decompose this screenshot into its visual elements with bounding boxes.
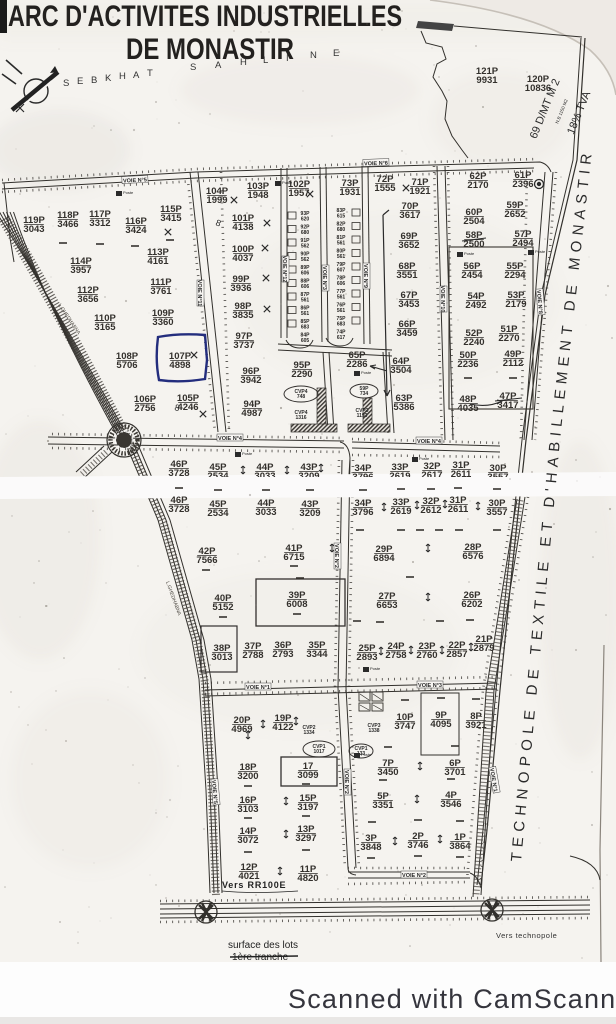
svg-text:1316: 1316	[295, 415, 306, 421]
svg-text:748: 748	[297, 394, 306, 400]
svg-text:3099: 3099	[297, 770, 318, 781]
svg-text:I: I	[286, 53, 289, 64]
svg-text:VOIE N°2: VOIE N°2	[343, 770, 349, 794]
svg-text:Poste: Poste	[361, 752, 372, 757]
svg-text:683: 683	[301, 325, 310, 331]
svg-text:606: 606	[301, 271, 310, 277]
svg-text:3453: 3453	[398, 299, 419, 310]
svg-text:6576: 6576	[462, 551, 483, 562]
svg-text:620: 620	[301, 217, 310, 223]
svg-text:5386: 5386	[393, 402, 414, 413]
svg-text:1957: 1957	[288, 188, 309, 199]
svg-text:1948: 1948	[247, 190, 268, 201]
svg-text:3942: 3942	[240, 375, 261, 386]
svg-text:4820: 4820	[297, 873, 318, 884]
svg-text:VOIE N°3: VOIE N°3	[418, 683, 442, 689]
svg-text:VOIE N°10: VOIE N°10	[439, 286, 445, 313]
svg-text:3466: 3466	[57, 219, 78, 230]
svg-text:Poste: Poste	[419, 456, 430, 461]
svg-text:680: 680	[337, 227, 346, 233]
svg-text:561: 561	[301, 311, 310, 317]
svg-text:3921: 3921	[465, 720, 487, 731]
svg-text:VOIE N°2: VOIE N°2	[333, 544, 339, 568]
svg-text:L: L	[263, 55, 268, 66]
svg-text:Vers technopole: Vers technopole	[496, 931, 557, 940]
svg-text:3551: 3551	[396, 270, 418, 281]
svg-text:2893: 2893	[356, 652, 377, 663]
svg-text:1193: 1193	[357, 413, 368, 419]
svg-text:2793: 2793	[272, 649, 293, 660]
svg-text:5706: 5706	[116, 360, 137, 371]
svg-text:3209: 3209	[299, 508, 320, 519]
svg-text:3864: 3864	[449, 841, 471, 852]
svg-text:2758: 2758	[385, 650, 406, 661]
svg-text:3013: 3013	[211, 652, 232, 663]
svg-text:3796: 3796	[352, 507, 373, 518]
svg-text:Poste: Poste	[242, 451, 253, 456]
svg-text:2236: 2236	[457, 359, 478, 370]
svg-text:561: 561	[301, 298, 310, 304]
svg-text:VOIE N°5: VOIE N°5	[123, 177, 147, 184]
svg-text:734: 734	[360, 391, 369, 397]
svg-text:4161: 4161	[147, 256, 169, 267]
svg-text:2504: 2504	[463, 216, 485, 227]
svg-text:607: 607	[337, 268, 346, 274]
svg-text:3351: 3351	[372, 800, 394, 811]
svg-text:4987: 4987	[241, 408, 262, 419]
svg-text:1338: 1338	[368, 728, 379, 734]
svg-text:4138: 4138	[232, 222, 253, 233]
svg-text:2290: 2290	[291, 369, 312, 380]
svg-text:2170: 2170	[467, 180, 488, 191]
svg-text:1999: 1999	[206, 195, 227, 206]
svg-text:2240: 2240	[463, 337, 484, 348]
svg-text:3504: 3504	[390, 365, 412, 376]
svg-text:Poste: Poste	[535, 249, 546, 254]
svg-text:E: E	[333, 48, 339, 59]
svg-text:562: 562	[301, 244, 310, 250]
svg-text:617: 617	[337, 335, 346, 341]
svg-text:2534: 2534	[207, 508, 229, 519]
svg-text:ARC D'ACTIVITES INDUSTRIELLES: ARC D'ACTIVITES INDUSTRIELLES	[8, 0, 402, 33]
svg-text:A: A	[215, 60, 222, 71]
svg-text:VOIE N°1: VOIE N°1	[246, 685, 270, 691]
svg-text:2619: 2619	[390, 506, 411, 517]
svg-text:N: N	[310, 50, 317, 61]
svg-text:3312: 3312	[89, 218, 110, 229]
svg-text:3459: 3459	[396, 328, 417, 339]
svg-text:605: 605	[301, 338, 310, 344]
svg-text:3848: 3848	[360, 842, 381, 853]
svg-text:606: 606	[301, 284, 310, 290]
svg-text:K: K	[105, 73, 112, 84]
svg-text:2652: 2652	[504, 209, 525, 220]
svg-text:2760: 2760	[416, 650, 437, 661]
svg-text:3103: 3103	[237, 804, 258, 815]
svg-text:2857: 2857	[446, 649, 467, 660]
svg-text:1931: 1931	[339, 187, 361, 198]
svg-text:Vers RR100E: Vers RR100E	[222, 880, 286, 890]
svg-text:3761: 3761	[150, 286, 172, 297]
svg-text:561: 561	[337, 241, 346, 247]
svg-text:DE MONASTIR: DE MONASTIR	[126, 31, 294, 65]
svg-text:2788: 2788	[242, 650, 263, 661]
svg-text:562: 562	[301, 257, 310, 263]
svg-text:3165: 3165	[94, 322, 116, 333]
svg-text:4037: 4037	[232, 253, 253, 264]
svg-text:2879: 2879	[473, 643, 494, 654]
svg-text:3043: 3043	[23, 224, 44, 235]
svg-text:3656: 3656	[77, 294, 98, 305]
svg-text:E: E	[77, 76, 83, 87]
svg-text:B: B	[91, 75, 97, 86]
svg-text:T: T	[147, 68, 153, 79]
svg-text:561: 561	[337, 254, 346, 260]
svg-text:3546: 3546	[440, 799, 461, 810]
svg-text:VOIE N°2: VOIE N°2	[402, 873, 426, 879]
svg-text:Poste: Poste	[123, 190, 134, 195]
svg-text:Poste: Poste	[464, 251, 475, 256]
svg-text:3835: 3835	[232, 310, 254, 321]
svg-text:6008: 6008	[286, 599, 307, 610]
svg-text:H: H	[240, 57, 247, 68]
svg-text:3344: 3344	[306, 649, 328, 660]
svg-text:Poste: Poste	[370, 666, 381, 671]
svg-text:2612: 2612	[420, 505, 441, 516]
svg-text:VOIE N°4: VOIE N°4	[218, 436, 243, 442]
svg-text:9931: 9931	[476, 75, 498, 86]
svg-text:2112: 2112	[503, 358, 524, 369]
svg-text:2396: 2396	[512, 179, 533, 190]
svg-text:1334: 1334	[303, 730, 314, 736]
svg-text:2179: 2179	[505, 299, 526, 310]
svg-text:3197: 3197	[297, 802, 318, 813]
svg-text:3936: 3936	[230, 283, 251, 294]
svg-text:3297: 3297	[295, 833, 316, 844]
svg-text:561: 561	[337, 308, 346, 314]
svg-text:VOIE N°3: VOIE N°3	[321, 266, 327, 290]
svg-text:2494: 2494	[512, 238, 534, 249]
svg-text:VOIE N°12: VOIE N°12	[281, 256, 287, 283]
svg-text:S: S	[190, 62, 196, 73]
svg-text:6894: 6894	[373, 553, 395, 564]
svg-text:3200: 3200	[237, 771, 258, 782]
svg-text:VOIE N°6: VOIE N°6	[364, 161, 388, 168]
svg-text:2454: 2454	[461, 270, 483, 281]
svg-text:3728: 3728	[168, 504, 189, 515]
svg-text:5152: 5152	[212, 602, 233, 613]
svg-text:3072: 3072	[237, 835, 258, 846]
svg-text:3747: 3747	[394, 721, 415, 732]
svg-text:Poste: Poste	[361, 370, 372, 375]
svg-text:2756: 2756	[134, 403, 155, 414]
svg-text:2270: 2270	[498, 333, 519, 344]
svg-text:2492: 2492	[465, 300, 486, 311]
svg-text:H: H	[119, 71, 126, 82]
svg-text:3701: 3701	[444, 767, 466, 778]
svg-text:6715: 6715	[283, 552, 305, 563]
svg-text:561: 561	[337, 295, 346, 301]
svg-text:4969: 4969	[231, 724, 252, 735]
svg-text:3360: 3360	[152, 317, 173, 328]
svg-text:4898: 4898	[169, 360, 190, 371]
svg-text:2611: 2611	[448, 504, 469, 515]
svg-text:Scanned with CamScanner: Scanned with CamScanner	[288, 984, 616, 1014]
svg-text:3737: 3737	[233, 340, 254, 351]
svg-text:3652: 3652	[398, 240, 419, 251]
svg-text:3033: 3033	[255, 507, 276, 518]
svg-text:1555: 1555	[374, 183, 396, 194]
svg-text:680: 680	[301, 230, 310, 236]
svg-text:VOIE N°4: VOIE N°4	[417, 439, 442, 445]
svg-text:3557: 3557	[486, 507, 507, 518]
svg-text:A: A	[133, 70, 140, 81]
svg-text:3746: 3746	[407, 840, 428, 851]
svg-text:2294: 2294	[504, 270, 526, 281]
svg-text:surface des lots: surface des lots	[228, 940, 298, 951]
svg-text:S: S	[63, 78, 69, 89]
svg-text:VOIE N°9: VOIE N°9	[362, 264, 368, 288]
svg-text:2286: 2286	[346, 359, 367, 370]
svg-text:3450: 3450	[377, 767, 398, 778]
svg-text:3424: 3424	[125, 225, 147, 236]
svg-text:1921: 1921	[409, 186, 431, 197]
svg-text:606: 606	[337, 281, 346, 287]
svg-text:3957: 3957	[70, 265, 91, 276]
svg-text:615: 615	[337, 214, 346, 220]
svg-text:3415: 3415	[160, 213, 182, 224]
svg-text:3617: 3617	[399, 210, 420, 221]
svg-text:1017: 1017	[313, 749, 324, 755]
svg-text:4122: 4122	[272, 722, 293, 733]
svg-text:VOIE N°11: VOIE N°11	[196, 280, 202, 307]
svg-text:683: 683	[337, 322, 346, 328]
svg-text:6653: 6653	[376, 600, 397, 611]
svg-text:Poste: Poste	[282, 180, 293, 185]
